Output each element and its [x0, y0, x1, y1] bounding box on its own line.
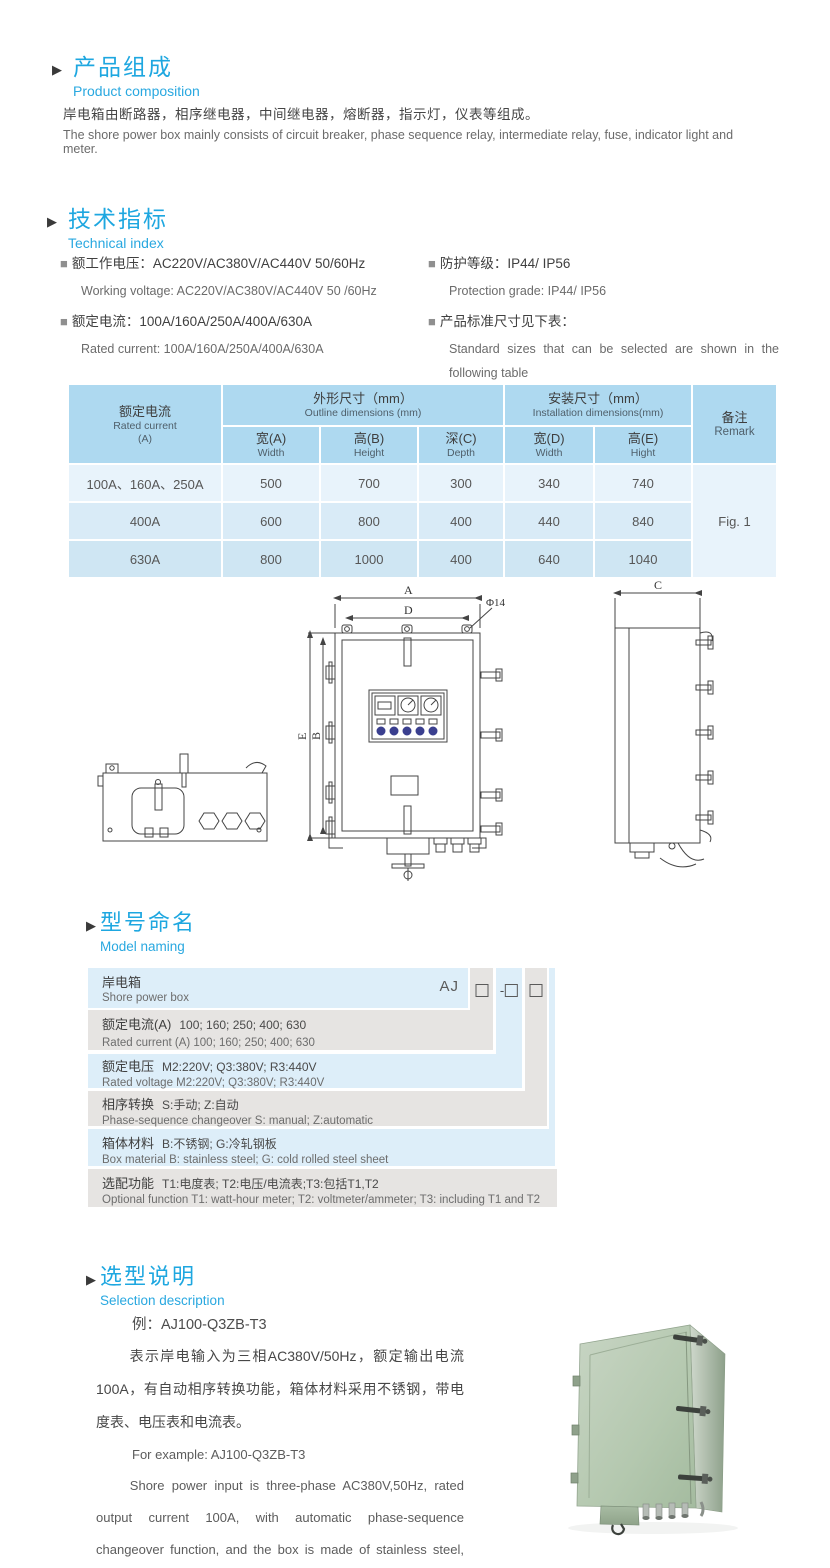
code-box-icon [475, 984, 488, 997]
front-view-drawing [308, 598, 502, 881]
model-row-label-cn: 选配功能 [102, 1176, 154, 1191]
section-title-cn: 技术指标 [68, 206, 168, 232]
spec-cn: 额工作电压：AC220V/AC380V/AC440V 50/60Hz [72, 256, 365, 271]
spec-cn: 防护等级：IP44/ IP56 [440, 256, 571, 271]
square-bullet-icon: ■ [60, 314, 68, 329]
model-row-label-en: Rated voltage M2:220V; Q3:380V; R3:440V [102, 1077, 522, 1089]
technical-drawing: A D Φ14 E B C [60, 578, 770, 895]
photo-shadow [568, 1522, 738, 1534]
model-row-label-en: Shore power box [102, 992, 468, 1004]
cell-value: 500 [223, 465, 319, 501]
code-box-icon [505, 984, 518, 997]
square-bullet-icon: ■ [428, 314, 436, 329]
model-row-shore-power-box: 岸电箱 Shore power box AJ [88, 968, 468, 1008]
datasheet-page: ▶ 产品组成 Product composition 岸电箱由断路器，相序继电器… [0, 0, 830, 1568]
col-header-remark: 备注 Remark [693, 385, 776, 463]
dim-label-a: A [404, 583, 413, 597]
cell-value: 400 [419, 503, 503, 539]
section-model-naming-heading: ▶ 型号命名 Model naming [86, 910, 196, 954]
col-group-outline: 外形尺寸（mm） Outline dimensions (mm) [223, 385, 503, 425]
table-row: 100A、160A、250A 500 700 300 340 740 Fig. … [69, 465, 776, 501]
spec-en: Working voltage: AC220V/AC380V/AC440V 50… [81, 279, 410, 303]
model-code-column-3 [525, 968, 547, 1091]
section-bullet-icon: ▶ [52, 63, 62, 76]
model-row-rated-voltage: 额定电压M2:220V; Q3:380V; R3:440V Rated volt… [88, 1054, 522, 1088]
col-group-installation: 安装尺寸（mm） Installation dimensions(mm) [505, 385, 691, 425]
cell-value: 1000 [321, 541, 417, 577]
side-view-drawing [615, 593, 713, 867]
cell-value: 440 [505, 503, 593, 539]
model-row-label-cn: 相序转换 [102, 1097, 154, 1112]
selection-body-en: Shore power input is three-phase AC380V,… [96, 1470, 464, 1568]
enclosure-front-face [577, 1325, 696, 1508]
model-row-rated-current: 额定电流(A)100; 160; 250; 400; 630 Rated cur… [88, 1010, 493, 1050]
section-title-en: Model naming [100, 939, 196, 954]
model-row-label-cn: 岸电箱 [102, 972, 468, 991]
cell-value: 740 [595, 465, 691, 501]
composition-text-en: The shore power box mainly consists of c… [63, 128, 743, 156]
square-bullet-icon: ■ [60, 256, 68, 271]
dim-label-c: C [654, 578, 662, 592]
bottom-view-drawing [98, 754, 267, 841]
section-selection-description-heading: ▶ 选型说明 Selection description [86, 1264, 225, 1308]
dimension-table: 额定电流 Rated current (A) 外形尺寸（mm） Outline … [67, 383, 778, 579]
cell-value: 700 [321, 465, 417, 501]
cell-current: 400A [69, 503, 221, 539]
section-title-en: Technical index [68, 235, 168, 251]
model-row-label-en: Optional function T1: watt-hour meter; T… [102, 1194, 557, 1206]
model-row-value-cn: B:不锈钢; G:冷轧钢板 [162, 1137, 277, 1151]
col-header-height-b: 高(B)Height [321, 427, 417, 463]
model-naming-diagram: 岸电箱 Shore power box AJ - 额定电流(A)100; 160… [88, 968, 558, 1208]
model-code-column-4 [549, 968, 555, 1129]
spec-en: Standard sizes that can be selected are … [449, 337, 779, 385]
dim-label-b: B [309, 732, 323, 740]
model-row-label-en: Box material B: stainless steel; G: cold… [102, 1154, 555, 1166]
section-title-en: Product composition [73, 83, 200, 99]
dim-label-d: D [404, 603, 413, 617]
cell-value: 640 [505, 541, 593, 577]
section-title-cn: 产品组成 [73, 54, 200, 80]
col-header-rated-current: 额定电流 Rated current (A) [69, 385, 221, 463]
product-photo [543, 1292, 815, 1545]
model-row-value-cn: M2:220V; Q3:380V; R3:440V [162, 1060, 317, 1074]
model-row-value-cn: S:手动; Z:自动 [162, 1098, 239, 1112]
spec-rated-current: ■额定电流：100A/160A/250A/400A/630A Rated cur… [60, 310, 410, 361]
composition-text-cn: 岸电箱由断路器，相序继电器，中间继电器，熔断器，指示灯，仪表等组成。 [63, 103, 763, 123]
model-prefix: AJ [439, 978, 459, 995]
model-code-column-1 [470, 968, 493, 1010]
spec-protection-grade: ■防护等级：IP44/ IP56 Protection grade: IP44/… [428, 252, 768, 303]
col-header-depth-c: 深(C)Depth [419, 427, 503, 463]
dim-label-e: E [295, 733, 309, 740]
section-title-en: Selection description [100, 1293, 225, 1308]
model-row-label-cn: 箱体材料 [102, 1136, 154, 1151]
cell-value: 600 [223, 503, 319, 539]
bottom-terminal-box [600, 1506, 639, 1525]
section-product-composition-heading: ▶ 产品组成 Product composition [52, 54, 200, 99]
section-title-cn: 型号命名 [100, 910, 196, 936]
selection-example-en: For example: AJ100-Q3ZB-T3 [96, 1439, 464, 1470]
cell-value: 800 [321, 503, 417, 539]
col-header-height-e: 高(E)Hight [595, 427, 691, 463]
cell-value: 400 [419, 541, 503, 577]
selection-example-cn: 例：AJ100-Q3ZB-T3 [96, 1310, 464, 1340]
spec-cn: 额定电流：100A/160A/250A/400A/630A [72, 314, 312, 329]
cell-current: 630A [69, 541, 221, 577]
model-row-label-en: Phase-sequence changeover S: manual; Z:a… [102, 1115, 547, 1127]
model-row-box-material: 箱体材料B:不锈钢; G:冷轧钢板 Box material B: stainl… [88, 1129, 555, 1166]
cell-current: 100A、160A、250A [69, 465, 221, 501]
model-row-phase-sequence: 相序转换S:手动; Z:自动 Phase-sequence changeover… [88, 1091, 547, 1126]
cell-value: 300 [419, 465, 503, 501]
model-row-label-cn: 额定电流(A) [102, 1017, 171, 1032]
selection-text-block: 例：AJ100-Q3ZB-T3 表示岸电输入为三相AC380V/50Hz，额定输… [96, 1310, 464, 1568]
model-code-column-2: - [496, 968, 522, 1054]
cell-value: 1040 [595, 541, 691, 577]
model-row-value-cn: 100; 160; 250; 400; 630 [179, 1018, 306, 1032]
spec-standard-sizes: ■产品标准尺寸见下表： Standard sizes that can be s… [428, 310, 768, 385]
spec-working-voltage: ■额工作电压：AC220V/AC380V/AC440V 50/60Hz Work… [60, 252, 410, 303]
col-header-width-a: 宽(A)Width [223, 427, 319, 463]
spec-cn: 产品标准尺寸见下表： [440, 314, 575, 329]
section-title-cn: 选型说明 [100, 1264, 225, 1290]
selection-body-cn: 表示岸电输入为三相AC380V/50Hz，额定输出电流100A，有自动相序转换功… [96, 1340, 464, 1439]
table-row: 400A 600 800 400 440 840 [69, 503, 776, 539]
model-row-value-cn: T1:电度表; T2:电压/电流表;T3:包括T1,T2 [162, 1177, 379, 1191]
code-dash: - [500, 983, 504, 998]
spec-en: Protection grade: IP44/ IP56 [449, 279, 768, 303]
cell-value: 340 [505, 465, 593, 501]
model-row-label-cn: 额定电压 [102, 1059, 154, 1074]
square-bullet-icon: ■ [428, 256, 436, 271]
cell-value: 840 [595, 503, 691, 539]
spec-en: Rated current: 100A/160A/250A/400A/630A [81, 337, 410, 361]
col-header-width-d: 宽(D)Width [505, 427, 593, 463]
section-bullet-icon: ▶ [86, 1273, 96, 1286]
model-row-label-en: Rated current (A) 100; 160; 250; 400; 63… [102, 1037, 493, 1049]
section-technical-index-heading: ▶ 技术指标 Technical index [47, 206, 168, 251]
dim-label-phi14: Φ14 [486, 597, 506, 609]
code-box-icon [530, 984, 543, 997]
cell-remark: Fig. 1 [693, 465, 776, 577]
table-row: 630A 800 1000 400 640 1040 [69, 541, 776, 577]
cell-value: 800 [223, 541, 319, 577]
section-bullet-icon: ▶ [86, 919, 96, 932]
model-row-optional-function: 选配功能T1:电度表; T2:电压/电流表;T3:包括T1,T2 Optiona… [88, 1169, 557, 1207]
section-bullet-icon: ▶ [47, 215, 57, 228]
